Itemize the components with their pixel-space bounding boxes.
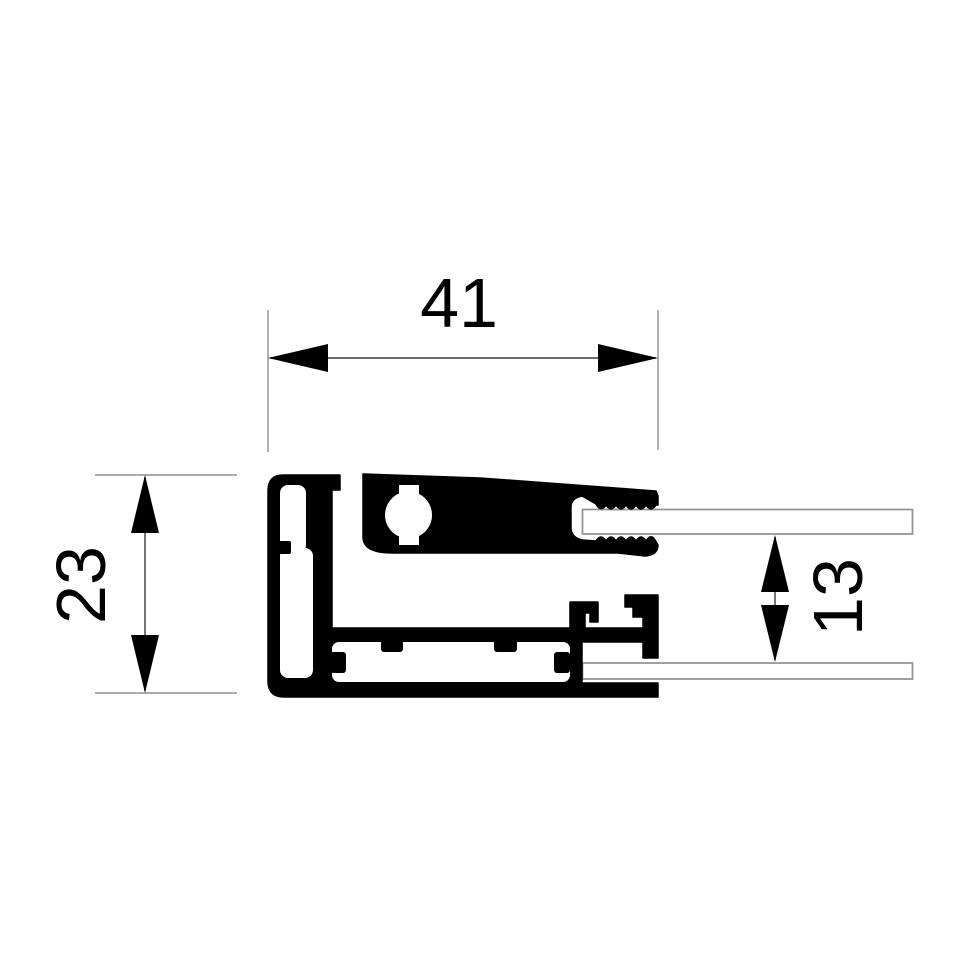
screw-port-bore xyxy=(385,492,432,539)
technical-drawing-page: 41 23 13 xyxy=(0,0,962,962)
bottom-chamber-tab-2 xyxy=(494,640,517,652)
height-dimension-label: 23 xyxy=(42,546,120,624)
bottom-chamber-tab-1 xyxy=(381,640,403,652)
upper-panel xyxy=(583,510,913,535)
bottom-chamber-right-lug xyxy=(554,652,570,673)
width-dimension-label: 41 xyxy=(420,264,498,342)
left-slot-notch-tab xyxy=(278,541,291,554)
bottom-chamber xyxy=(332,642,570,682)
bottom-chamber-left-lug xyxy=(330,652,346,673)
gap-dimension-label: 13 xyxy=(799,558,877,636)
lower-panel xyxy=(583,663,913,679)
left-slot-lower xyxy=(280,548,313,678)
profile-cross-section-drawing: 41 23 13 xyxy=(0,0,962,962)
